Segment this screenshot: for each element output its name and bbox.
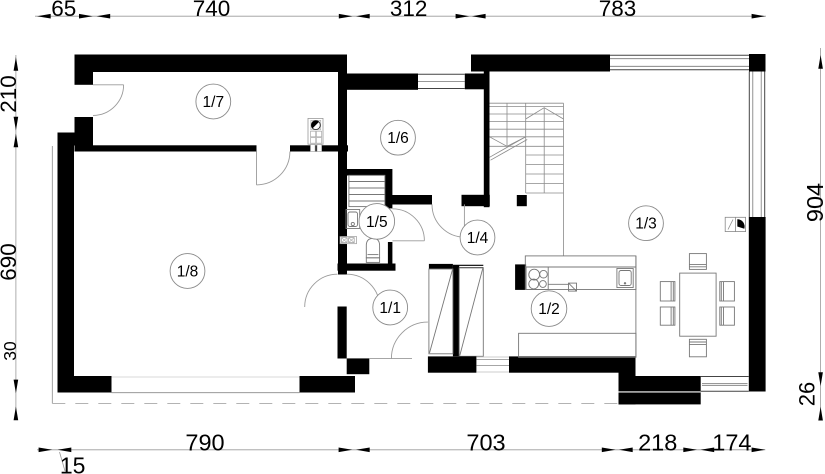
svg-text:1/7: 1/7 <box>203 94 225 111</box>
svg-text:30: 30 <box>0 341 20 361</box>
svg-text:1/4: 1/4 <box>467 230 489 247</box>
svg-text:65: 65 <box>51 0 76 21</box>
svg-text:1/5: 1/5 <box>366 214 388 231</box>
svg-text:174: 174 <box>712 430 751 456</box>
svg-text:218: 218 <box>638 430 677 456</box>
svg-text:312: 312 <box>390 0 428 21</box>
svg-text:1/8: 1/8 <box>177 264 199 281</box>
svg-text:15: 15 <box>60 453 86 474</box>
svg-text:904: 904 <box>802 183 825 222</box>
svg-text:210: 210 <box>0 75 21 113</box>
svg-text:740: 740 <box>193 0 231 21</box>
svg-text:1/2: 1/2 <box>538 301 560 318</box>
svg-text:703: 703 <box>466 430 505 456</box>
svg-text:1/6: 1/6 <box>387 130 409 147</box>
svg-text:1/1: 1/1 <box>379 300 401 317</box>
svg-text:26: 26 <box>795 382 820 406</box>
svg-text:790: 790 <box>185 430 224 456</box>
svg-text:1/3: 1/3 <box>635 216 657 233</box>
svg-text:690: 690 <box>0 243 21 281</box>
svg-text:783: 783 <box>599 0 637 21</box>
